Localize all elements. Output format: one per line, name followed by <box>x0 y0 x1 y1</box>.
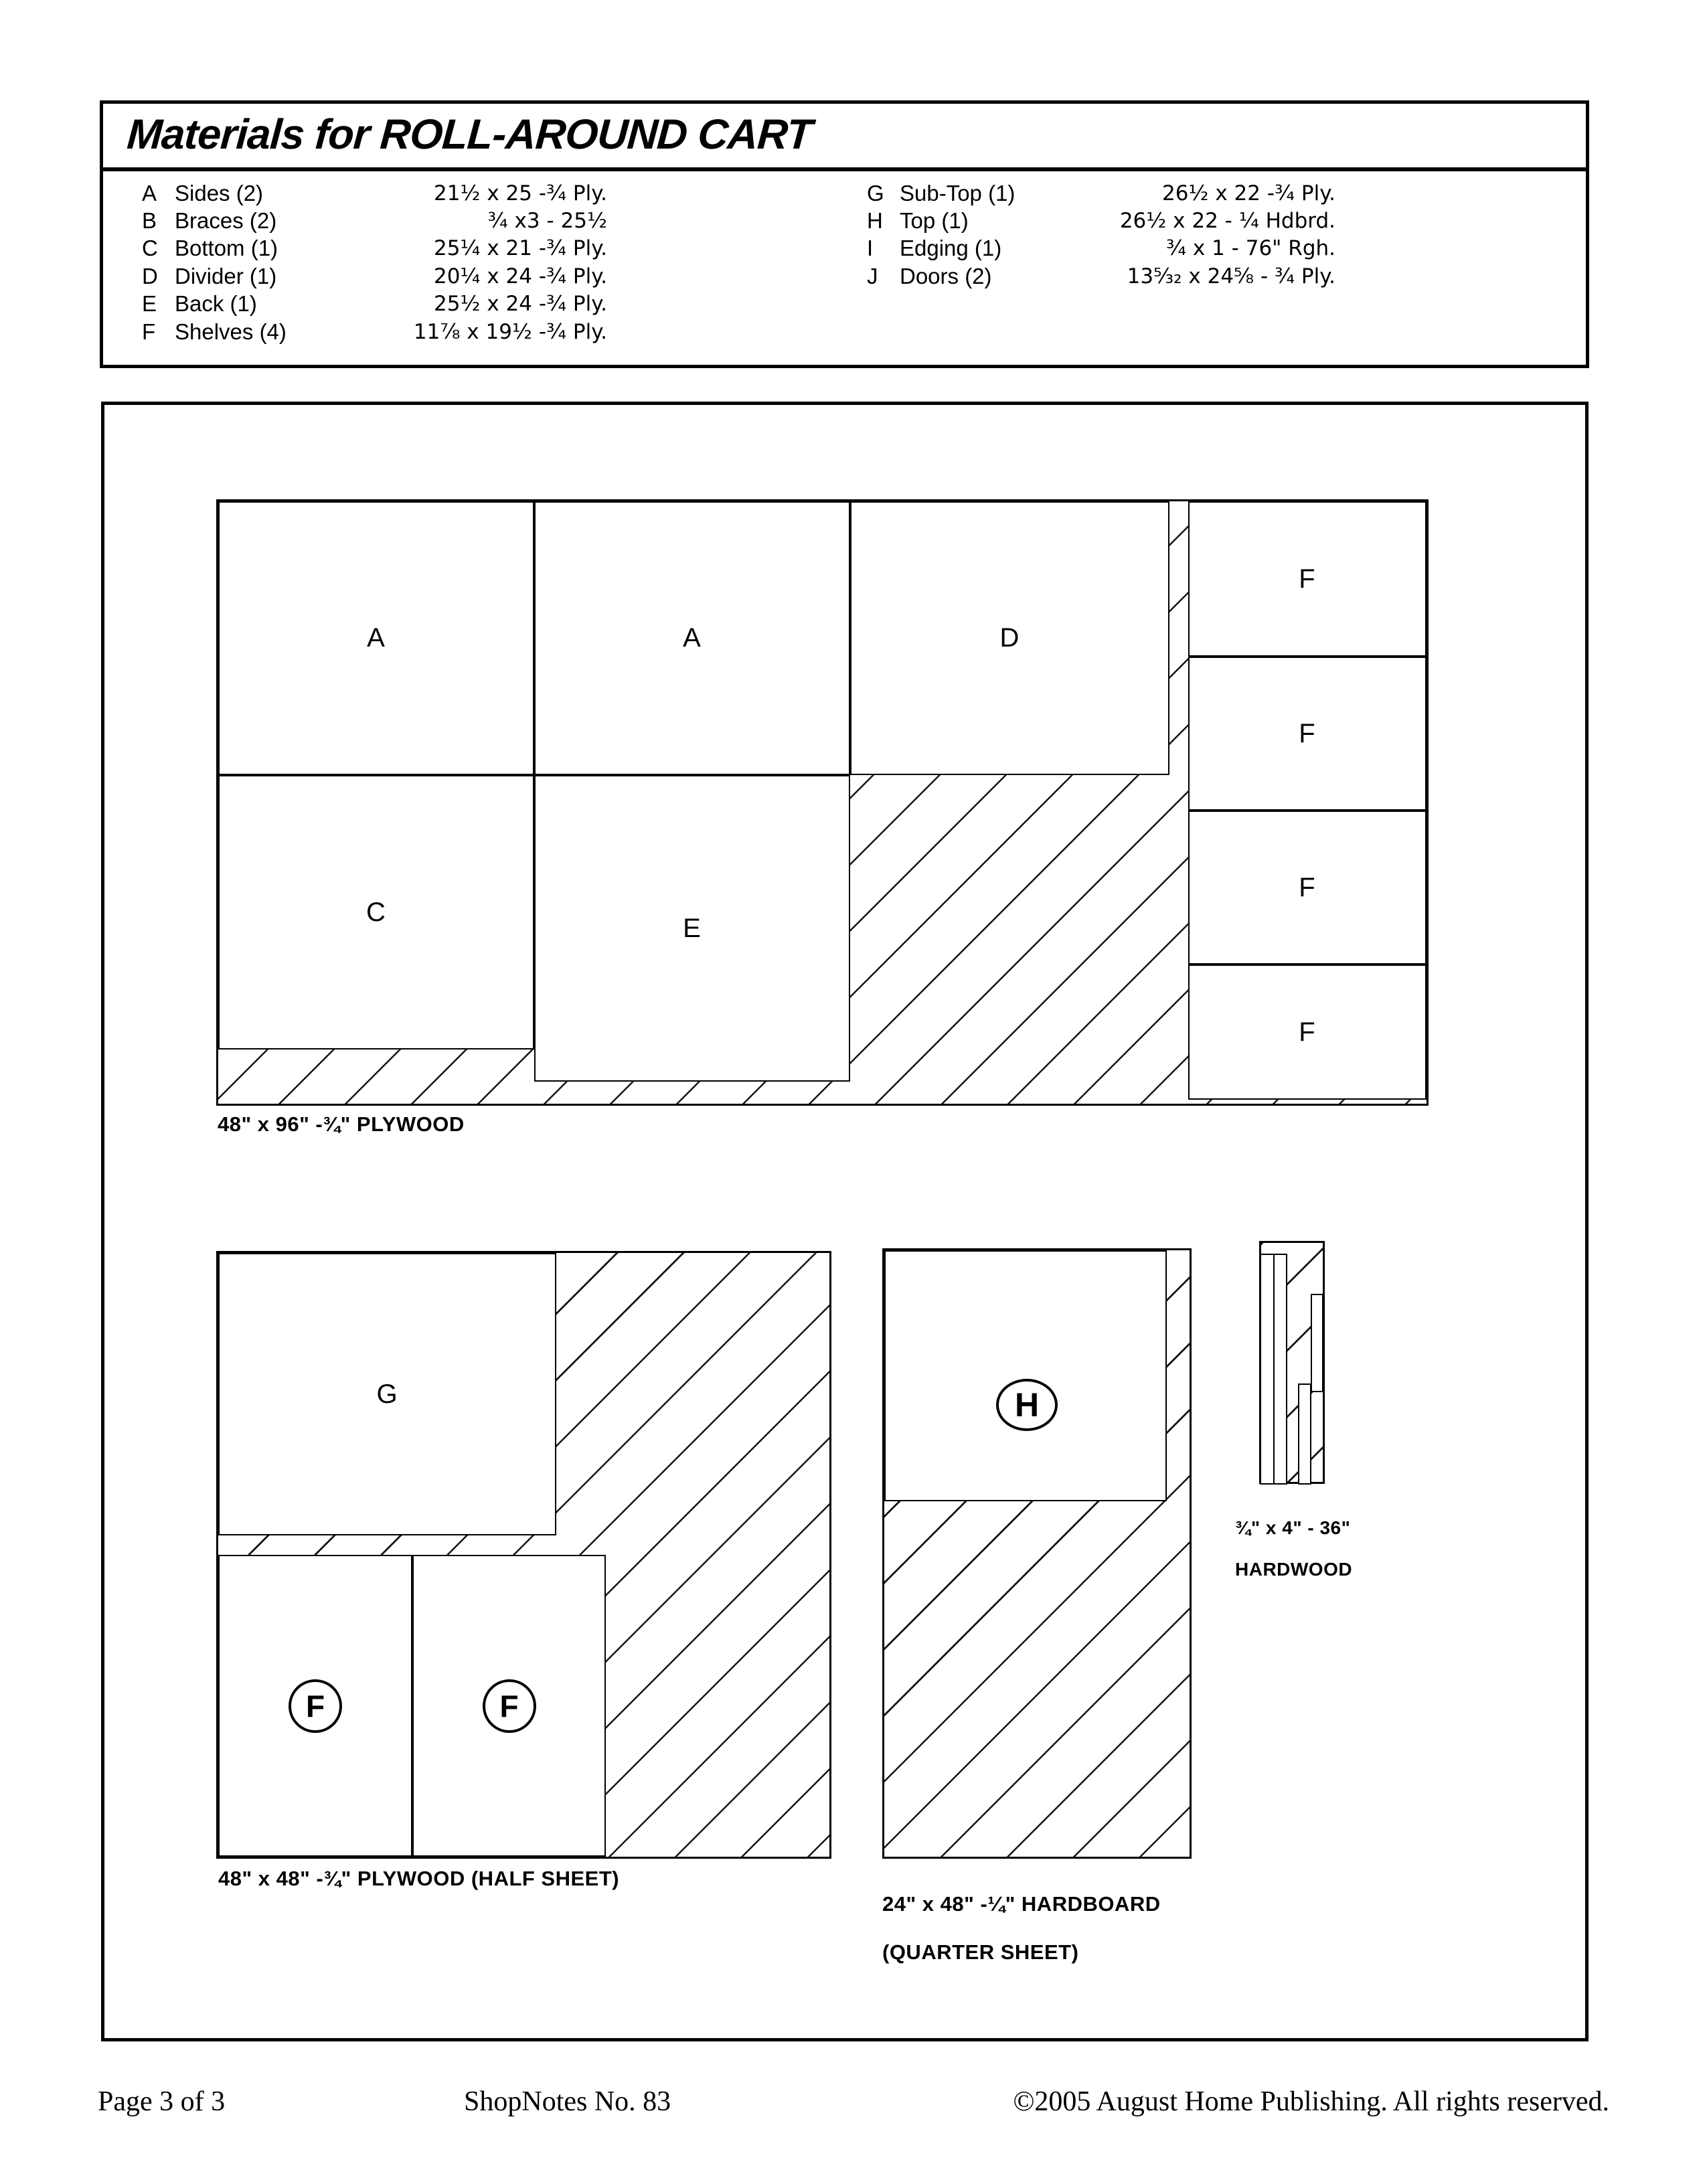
caption-hardboard: 24" x 48" -¼" HARDBOARD (QUARTER SHEET) <box>882 1868 1161 1964</box>
material-name: Braces (2) <box>175 208 488 234</box>
caption-plywood-48: 48" x 48" -¾" PLYWOOD (HALF SHEET) <box>218 1867 619 1891</box>
material-letter: H <box>867 208 900 234</box>
material-name: Bottom (1) <box>175 236 434 261</box>
material-dimension: 11⅞ x 19½ -¾ Ply. <box>414 320 607 344</box>
piece-label: E <box>683 914 702 944</box>
page: Materials for ROLL-AROUND CART A Sides (… <box>0 0 1707 2184</box>
material-row: E Back (1) 25½ x 24 -¾ Ply. <box>142 290 607 318</box>
page-title: Materials for ROLL-AROUND CART <box>125 110 1066 159</box>
piece-subtop-g: G <box>218 1253 556 1535</box>
material-letter: G <box>867 181 900 206</box>
material-dimension: ¾ x3 - 25½ <box>488 209 607 233</box>
piece-shelf-f: F <box>1188 811 1427 964</box>
material-name: Sub-Top (1) <box>900 181 1162 206</box>
piece-divider-d: D <box>850 501 1169 775</box>
sheet-hardwood <box>1259 1241 1325 1484</box>
piece-side-a: A <box>534 501 850 775</box>
piece-shelf-f: F <box>1188 501 1427 657</box>
piece-shelf-f-circled: F <box>218 1555 412 1857</box>
piece-label-circled: F <box>289 1679 342 1733</box>
material-row: D Divider (1) 20¼ x 24 -¾ Ply. <box>142 262 607 290</box>
caption-hardwood-line2: HARDWOOD <box>1235 1559 1352 1580</box>
piece-back-e: E <box>534 775 850 1082</box>
edging-strip <box>1273 1254 1287 1485</box>
piece-label: G <box>376 1379 398 1410</box>
caption-hardboard-line1: 24" x 48" -¼" HARDBOARD <box>882 1892 1161 1916</box>
piece-label: F <box>1299 719 1315 749</box>
material-dimension: 21½ x 25 -¾ Ply. <box>434 181 607 205</box>
material-letter: C <box>142 236 175 261</box>
footer-publication: ShopNotes No. 83 <box>464 2086 671 2118</box>
material-row: H Top (1) 26½ x 22 - ¼ Hdbrd. <box>867 207 1335 234</box>
piece-label-circled: F <box>483 1679 536 1733</box>
caption-plywood-96: 48" x 96" -¾" PLYWOOD <box>218 1112 465 1137</box>
piece-label: F <box>1299 873 1315 903</box>
piece-shelf-f-circled: F <box>412 1555 606 1857</box>
piece-label: D <box>1000 623 1020 653</box>
sheet-plywood-48: G F F <box>216 1251 831 1859</box>
material-dimension: 25½ x 24 -¾ Ply. <box>434 292 607 316</box>
piece-side-a: A <box>218 501 534 775</box>
material-letter: F <box>142 319 175 345</box>
material-dimension: 26½ x 22 - ¼ Hdbrd. <box>1120 209 1335 233</box>
materials-column-right: G Sub-Top (1) 26½ x 22 -¾ Ply. H Top (1)… <box>867 179 1335 290</box>
sheet-plywood-96: A A D C E F F F F <box>216 499 1429 1106</box>
piece-shelf-f: F <box>1188 964 1427 1100</box>
material-row: F Shelves (4) 11⅞ x 19½ -¾ Ply. <box>142 318 607 345</box>
footer-page-number: Page 3 of 3 <box>98 2086 225 2118</box>
material-name: Top (1) <box>900 208 1120 234</box>
caption-hardwood-line1: ¾" x 4" - 36" <box>1235 1517 1350 1538</box>
material-name: Sides (2) <box>175 181 434 206</box>
footer-copyright: ©2005 August Home Publishing. All rights… <box>1013 2086 1609 2118</box>
material-dimension: ¾ x 1 - 76" Rgh. <box>1166 236 1335 260</box>
material-letter: A <box>142 181 175 206</box>
material-name: Edging (1) <box>900 236 1166 261</box>
material-letter: D <box>142 264 175 289</box>
material-row: J Doors (2) 13⁵⁄₃₂ x 24⅝ - ¾ Ply. <box>867 262 1335 290</box>
material-row: I Edging (1) ¾ x 1 - 76" Rgh. <box>867 235 1335 262</box>
piece-label: F <box>1299 564 1315 594</box>
material-letter: B <box>142 208 175 234</box>
material-dimension: 26½ x 22 -¾ Ply. <box>1162 181 1335 205</box>
material-dimension: 25¼ x 21 -¾ Ply. <box>434 236 607 260</box>
material-dimension: 20¼ x 24 -¾ Ply. <box>434 264 607 288</box>
material-letter: J <box>867 264 900 289</box>
material-row: C Bottom (1) 25¼ x 21 -¾ Ply. <box>142 235 607 262</box>
piece-label-circled: H <box>996 1379 1058 1431</box>
piece-label: F <box>1299 1017 1315 1047</box>
material-name: Doors (2) <box>900 264 1127 289</box>
edging-strip <box>1260 1254 1275 1485</box>
material-letter: E <box>142 291 175 317</box>
caption-hardboard-line2: (QUARTER SHEET) <box>882 1940 1078 1964</box>
materials-column-left: A Sides (2) 21½ x 25 -¾ Ply. B Braces (2… <box>142 179 607 345</box>
footer: Page 3 of 3 ShopNotes No. 83 ©2005 Augus… <box>0 2080 1707 2123</box>
caption-hardwood: ¾" x 4" - 36" HARDWOOD <box>1235 1497 1352 1580</box>
material-row: A Sides (2) 21½ x 25 -¾ Ply. <box>142 179 607 207</box>
material-name: Back (1) <box>175 291 434 317</box>
piece-shelf-f: F <box>1188 657 1427 811</box>
edging-strip <box>1311 1294 1323 1392</box>
material-row: B Braces (2) ¾ x3 - 25½ <box>142 207 607 234</box>
material-row: G Sub-Top (1) 26½ x 22 -¾ Ply. <box>867 179 1335 207</box>
material-dimension: 13⁵⁄₃₂ x 24⅝ - ¾ Ply. <box>1127 264 1335 288</box>
piece-label: C <box>366 898 386 928</box>
piece-label: A <box>367 623 386 653</box>
sheet-hardboard: H <box>882 1248 1192 1859</box>
material-name: Shelves (4) <box>175 319 414 345</box>
piece-top-h: H <box>884 1250 1167 1501</box>
material-name: Divider (1) <box>175 264 434 289</box>
piece-label: A <box>683 623 702 653</box>
edging-strip <box>1298 1383 1311 1485</box>
material-letter: I <box>867 236 900 261</box>
piece-bottom-c: C <box>218 775 534 1049</box>
title-divider <box>101 167 1588 171</box>
